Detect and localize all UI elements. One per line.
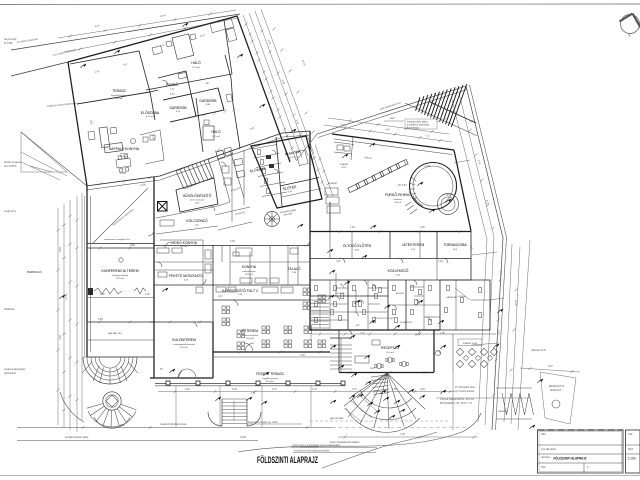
svg-text:ELŐSZOBA: ELŐSZOBA xyxy=(141,110,160,115)
svg-text:40,0 m2: 40,0 m2 xyxy=(180,347,189,349)
svg-text:HŰSÖLŐKÉSZÍTŐ: HŰSÖLŐKÉSZÍTŐ xyxy=(183,193,212,198)
svg-text:1,70: 1,70 xyxy=(312,388,317,391)
svg-text:MSZ: MSZ xyxy=(628,448,634,451)
svg-text:kerítés tervezett: kerítés tervezett xyxy=(4,161,21,164)
svg-text:1,35: 1,35 xyxy=(300,354,305,357)
svg-text:szőnyeg burkolat: szőnyeg burkolat xyxy=(112,274,129,277)
svg-text:altér: altér xyxy=(390,117,395,120)
svg-text:KONFERENCIA TEREM: KONFERENCIA TEREM xyxy=(101,269,138,273)
svg-text:17,40: 17,40 xyxy=(65,293,68,300)
svg-text:hrsz 1234/5: hrsz 1234/5 xyxy=(4,165,17,168)
svg-text:FÖLDSZINTI ALAPRAJZ: FÖLDSZINTI ALAPRAJZ xyxy=(554,456,588,461)
svg-text:GARDRÓB: GARDRÓB xyxy=(199,98,217,103)
svg-text:KÜLÖNTEREM: KÜLÖNTEREM xyxy=(172,338,196,342)
svg-text:2,40: 2,40 xyxy=(185,388,190,391)
svg-text:MOSDÓ: MOSDÓ xyxy=(396,292,405,295)
svg-text:meglévő útburkolat széle: meglévő útburkolat széle xyxy=(160,423,187,426)
svg-text:fagyálló burkolat: fagyálló burkolat xyxy=(111,94,127,97)
svg-text:15,0 m2: 15,0 m2 xyxy=(212,136,221,138)
svg-text:szőnyegpadló burkolat: szőnyegpadló burkolat xyxy=(173,343,195,346)
svg-text:1:100: 1:100 xyxy=(628,457,636,461)
svg-text:helyszínrajz: helyszínrajz xyxy=(4,38,17,41)
svg-text:TÁLALÓ: TÁLALÓ xyxy=(287,266,300,271)
svg-text:5,80: 5,80 xyxy=(98,318,103,321)
svg-text:KÁVÉKÉSZÍTŐ PULT 2: KÁVÉKÉSZÍTŐ PULT 2 xyxy=(222,288,258,293)
svg-text:WC: WC xyxy=(356,325,360,327)
svg-text:TSZ: TSZ xyxy=(628,433,633,436)
svg-text:1,70: 1,70 xyxy=(251,392,256,395)
svg-text:gépi útnyitás: gépi útnyitás xyxy=(330,417,344,420)
svg-text:FEKETE MOSOGATÓ: FEKETE MOSOGATÓ xyxy=(169,273,203,278)
svg-text:36,0°: 36,0° xyxy=(446,194,452,197)
svg-text:zöldfelület: zöldfelület xyxy=(4,308,15,311)
svg-text:3,70: 3,70 xyxy=(352,388,357,391)
svg-text:9,80: 9,80 xyxy=(130,244,135,247)
svg-text:melegkonyha: melegkonyha xyxy=(242,271,256,273)
svg-text:3,10: 3,10 xyxy=(310,335,313,340)
svg-text:FÜRDŐ-PIHENŐ: FÜRDŐ-PIHENŐ xyxy=(385,192,412,197)
svg-text:NÉV: NÉV xyxy=(541,433,546,436)
svg-text:ZUHANYZÓ: ZUHANYZÓ xyxy=(400,321,412,324)
svg-text:8,0 m2: 8,0 m2 xyxy=(181,246,188,248)
svg-text:PARKOLÓ: PARKOLÓ xyxy=(550,389,562,392)
svg-text:4,87: 4,87 xyxy=(548,365,553,368)
svg-text:2,47: 2,47 xyxy=(218,295,223,298)
svg-text:1,90: 1,90 xyxy=(350,226,355,229)
svg-text:R= 6,50: R= 6,50 xyxy=(398,184,407,187)
svg-text:RECEPCIÓ: RECEPCIÓ xyxy=(381,345,399,350)
svg-text:PULT: PULT xyxy=(341,167,347,169)
svg-text:RAKTÁR 16,0: RAKTÁR 16,0 xyxy=(108,332,123,335)
svg-text:1,47: 1,47 xyxy=(170,93,175,96)
svg-text:aszfalt burkolatú járda: aszfalt burkolatú járda xyxy=(65,436,89,439)
svg-text:TERASZ: TERASZ xyxy=(112,89,125,93)
svg-text:7,28: 7,28 xyxy=(400,433,405,436)
svg-text:FÖLDSZINTI ALAPRAJZ: FÖLDSZINTI ALAPRAJZ xyxy=(257,455,318,465)
svg-text:4,80: 4,80 xyxy=(59,335,62,340)
svg-text:78,0 m2: 78,0 m2 xyxy=(116,278,125,280)
svg-text:ÖLTÖZŐ: ÖLTÖZŐ xyxy=(336,292,345,295)
svg-text:kiegészítő szegély ép. határ: kiegészítő szegély ép. határ xyxy=(248,421,278,424)
svg-text:Övezeti előírás fölszint: 10,5: Övezeti előírás fölszint: 10,5 m2 xyxy=(440,398,475,401)
svg-text:56,0 m2: 56,0 m2 xyxy=(266,381,275,383)
svg-text:24,66: 24,66 xyxy=(514,300,517,307)
svg-text:FEDETT TERASZ: FEDETT TERASZ xyxy=(256,372,283,376)
svg-text:GÉPÉSZET: GÉPÉSZET xyxy=(446,296,458,299)
svg-text:2,05: 2,05 xyxy=(440,332,445,335)
svg-text:KÖLCSÖNZŐ: KÖLCSÖNZŐ xyxy=(186,218,208,223)
svg-text:trapézlemez szegélyek fsz: trapézlemez szegélyek fsz xyxy=(104,238,130,241)
svg-text:M 1:500: M 1:500 xyxy=(4,42,13,45)
svg-text:5,388: 5,388 xyxy=(120,172,127,175)
svg-text:meglévő kapubejáró: meglévő kapubejáró xyxy=(4,368,26,371)
svg-text:ÖLTÖZŐ ELŐTÉR: ÖLTÖZŐ ELŐTÉR xyxy=(343,243,372,248)
svg-text:ÖLTÖZŐ FOLYOSÓ: ÖLTÖZŐ FOLYOSÓ xyxy=(374,317,394,320)
svg-text:ny= térkő burkolat: ny= térkő burkolat xyxy=(455,390,474,393)
svg-text:30,0 m2: 30,0 m2 xyxy=(245,274,254,276)
svg-text:KÖZLEKEDŐ: KÖZLEKEDŐ xyxy=(388,268,409,273)
svg-text:elbontandó: elbontandó xyxy=(4,372,17,375)
svg-text:HÁLÓ: HÁLÓ xyxy=(191,60,201,65)
svg-text:meglévő fa: meglévő fa xyxy=(4,210,16,213)
svg-text:17,5 m2: 17,5 m2 xyxy=(192,67,201,69)
svg-text:PARKOLÓ: PARKOLÓ xyxy=(27,269,42,274)
svg-text:TEZ: TEZ xyxy=(541,466,546,469)
svg-text:védett övezet területhatár öve: védett övezet területhatár övezet magass… xyxy=(292,444,340,447)
svg-text:BESZÁLLÍTÓI: BESZÁLLÍTÓI xyxy=(549,385,564,388)
svg-text:PIHENŐ: PIHENŐ xyxy=(340,163,349,166)
svg-text:JÁTÉKTEREM: JÁTÉKTEREM xyxy=(402,242,425,247)
svg-text:4,20: 4,20 xyxy=(232,388,237,391)
svg-text:12,40: 12,40 xyxy=(499,270,502,277)
svg-text:parkolás P+R: parkolás P+R xyxy=(531,349,546,352)
svg-text:1,10: 1,10 xyxy=(360,332,365,335)
svg-text:TORNASZOBA: TORNASZOBA xyxy=(443,243,467,247)
svg-text:medence: medence xyxy=(394,199,404,201)
svg-text:csatorna: csatorna xyxy=(498,410,508,413)
svg-text:GARDRÓB: GARDRÓB xyxy=(169,105,187,110)
svg-text:4,05: 4,05 xyxy=(420,226,425,229)
svg-text:14,50: 14,50 xyxy=(240,436,247,439)
svg-text:HÁLÓ: HÁLÓ xyxy=(211,129,221,134)
svg-text:4,50: 4,50 xyxy=(100,293,105,296)
svg-text:152 m2: 152 m2 xyxy=(394,202,402,204)
svg-text:NAPPALI+KONYHA: NAPPALI+KONYHA xyxy=(109,147,140,151)
svg-text:tervezési terület határvonal j: tervezési terület határvonal jelzés xyxy=(294,450,330,453)
svg-text:3,70: 3,70 xyxy=(272,388,277,391)
svg-text:55,0 m2: 55,0 m2 xyxy=(115,98,124,100)
svg-text:76,0 m2: 76,0 m2 xyxy=(246,338,255,340)
svg-text:7,28: 7,28 xyxy=(120,424,125,427)
svg-text:pult: pult xyxy=(195,224,199,227)
svg-text:HIDEG KONYHA: HIDEG KONYHA xyxy=(171,241,198,245)
svg-text:2,25: 2,25 xyxy=(420,388,425,391)
svg-text:A-S JELLEGŰ: A-S JELLEGŰ xyxy=(541,448,557,451)
svg-text:fagyálló greslap: fagyálló greslap xyxy=(262,377,278,380)
svg-text:techn. burkolat: techn. burkolat xyxy=(190,199,205,202)
svg-text:4,18: 4,18 xyxy=(438,260,443,263)
svg-text:PIHENŐ: PIHENŐ xyxy=(329,182,338,185)
svg-text:rajzszám: rajzszám xyxy=(541,456,551,459)
svg-text:1,87: 1,87 xyxy=(336,260,341,263)
svg-text:1,00: 1,00 xyxy=(145,293,150,296)
svg-text:BVKSZABÁLY 7/4, 32/07 / 7,5: BVKSZABÁLY 7/4, 32/07 / 7,5 xyxy=(440,402,473,405)
svg-text:4,30: 4,30 xyxy=(230,240,235,243)
svg-text:P= útburkolat köve: P= útburkolat köve xyxy=(455,386,476,389)
svg-text:20,0 m2: 20,0 m2 xyxy=(386,352,395,354)
svg-text:6,50: 6,50 xyxy=(59,247,62,252)
svg-text:8,10 m2: 8,10 m2 xyxy=(146,116,155,118)
svg-text:4,22: 4,22 xyxy=(370,367,375,370)
svg-text:KONYHA: KONYHA xyxy=(242,265,257,269)
svg-text:+1,05: +1,05 xyxy=(424,165,431,168)
